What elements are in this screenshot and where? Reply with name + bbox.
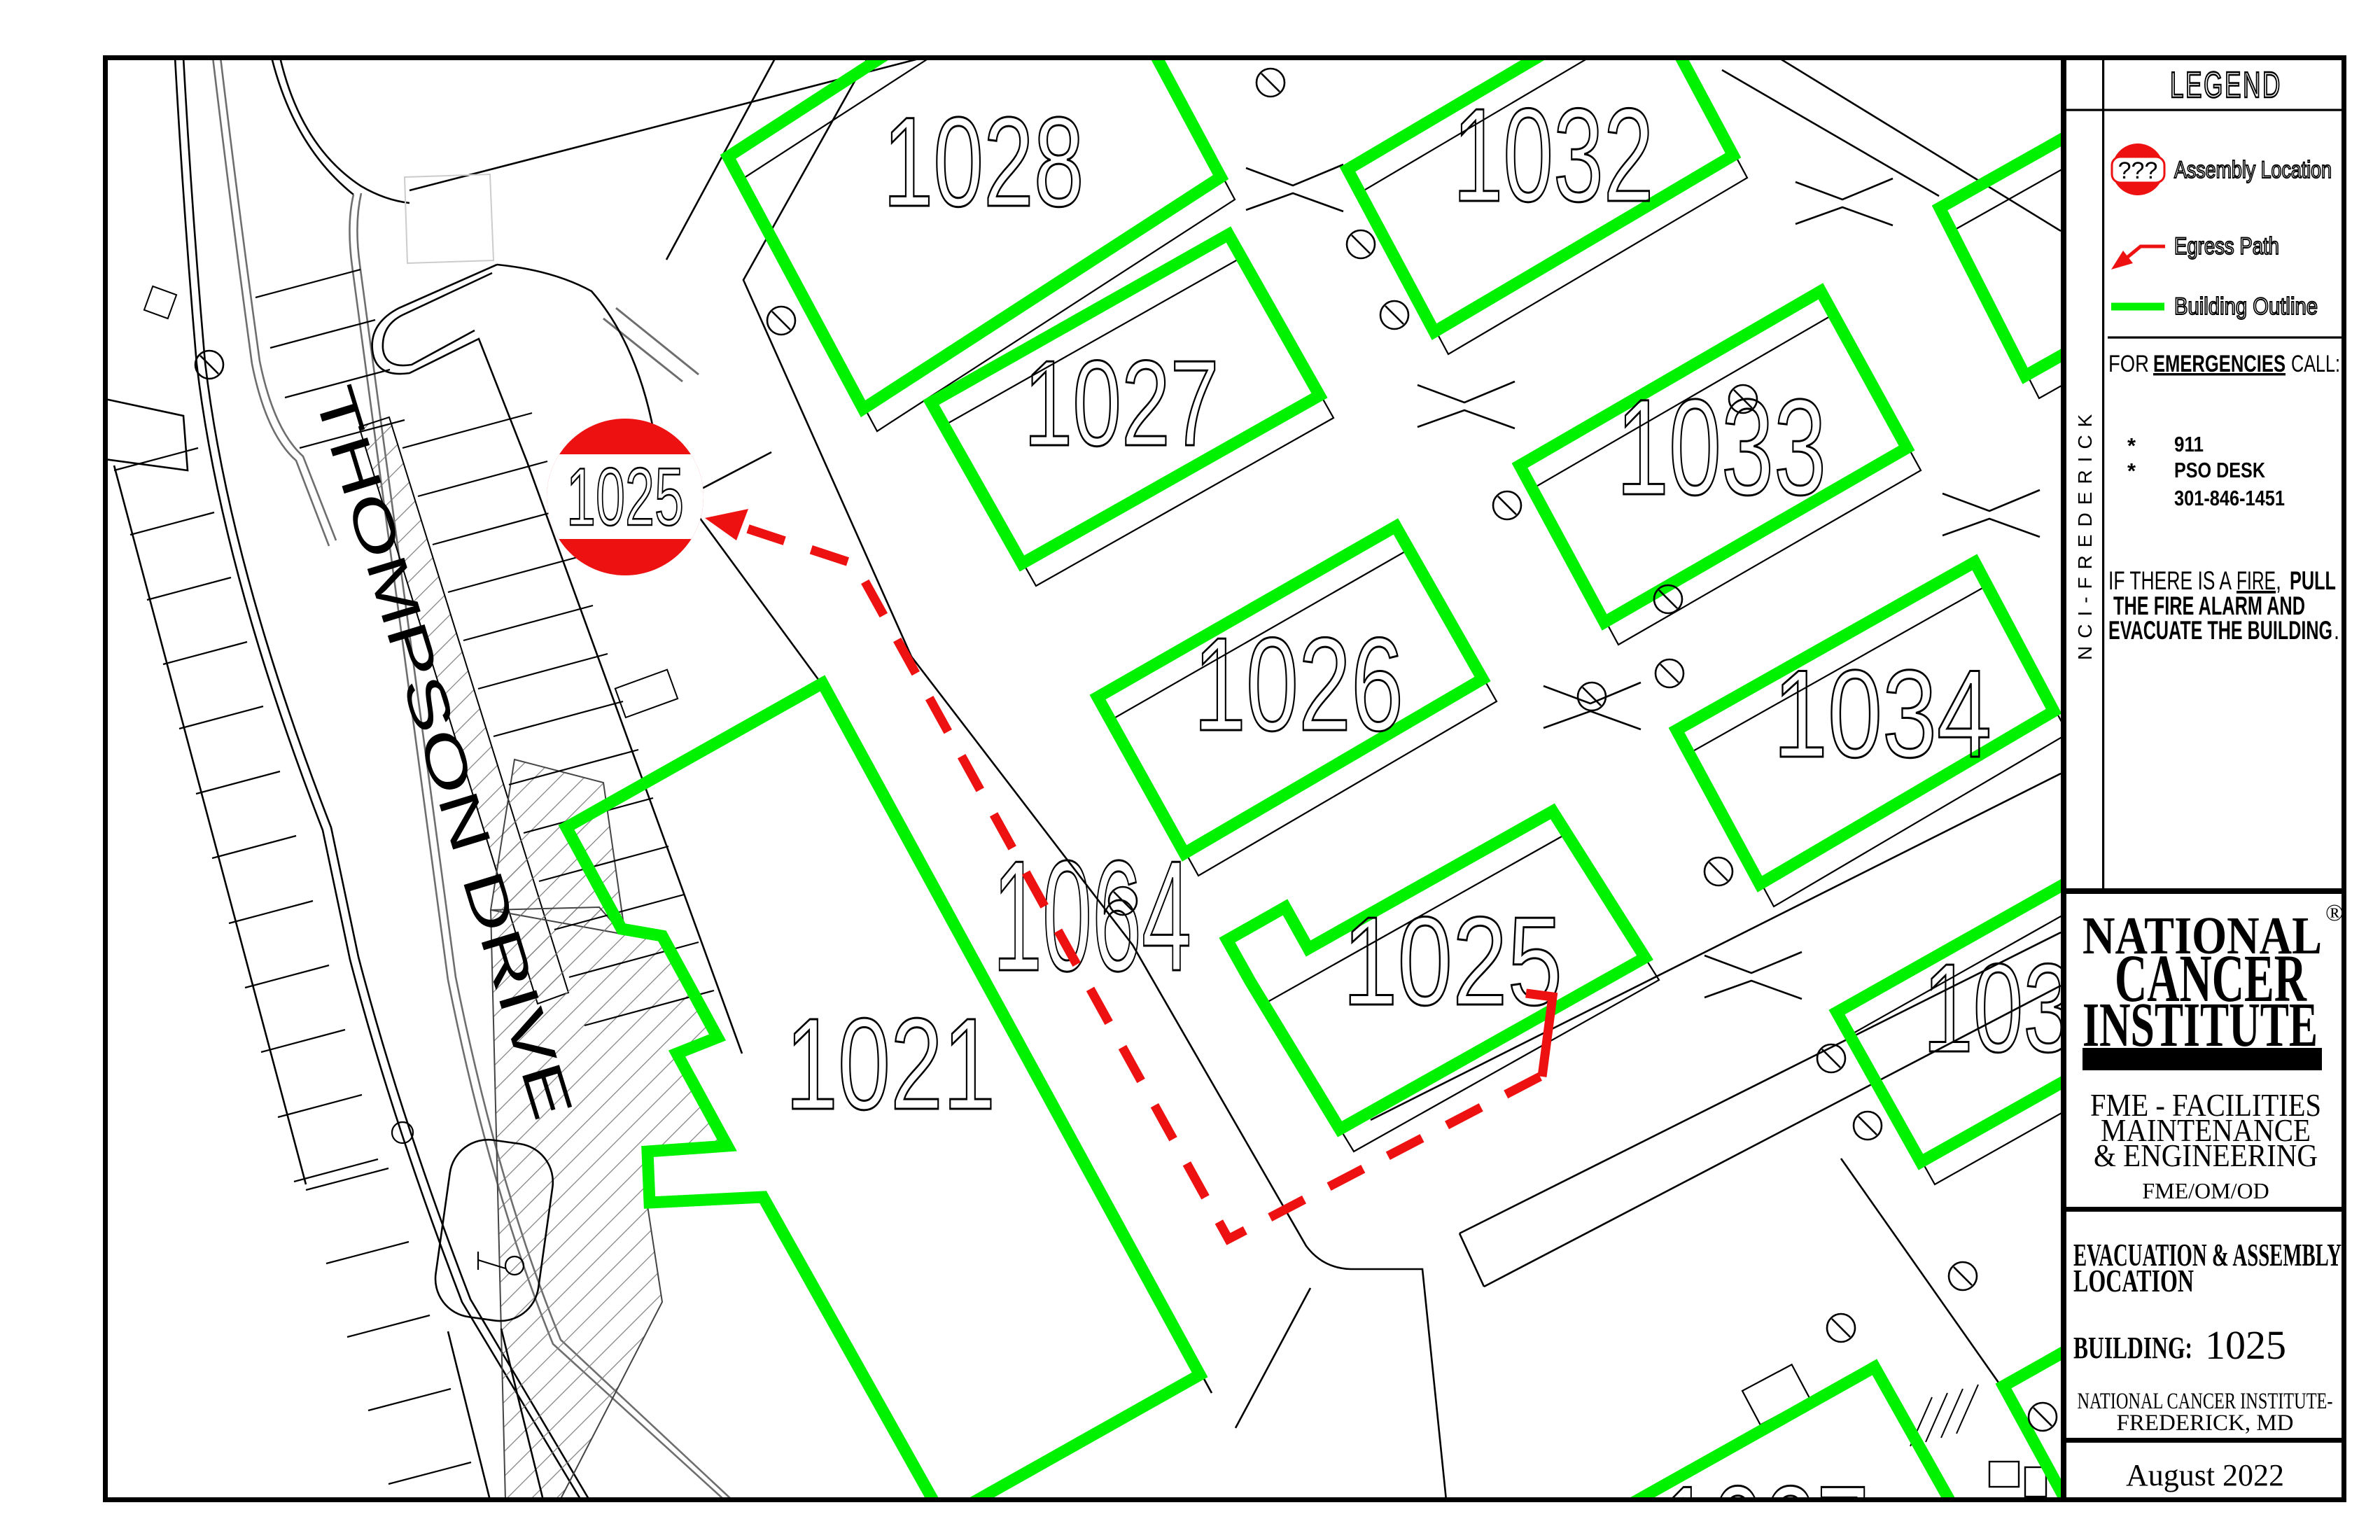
svg-text:& ENGINEERING: & ENGINEERING bbox=[2094, 1137, 2318, 1173]
svg-text:LOCATION: LOCATION bbox=[2073, 1263, 2194, 1298]
svg-text:1064: 1064 bbox=[993, 827, 1191, 1004]
svg-text:®: ® bbox=[2325, 900, 2344, 926]
svg-text:.: . bbox=[2334, 616, 2339, 645]
svg-text:*: * bbox=[2127, 458, 2136, 483]
svg-text:PULL: PULL bbox=[2290, 566, 2336, 595]
svg-text:1028: 1028 bbox=[883, 90, 1084, 233]
svg-text:1034: 1034 bbox=[1773, 644, 1991, 783]
svg-text:NCI-FREDERICK: NCI-FREDERICK bbox=[2074, 407, 2096, 660]
svg-text:BUILDING:: BUILDING: bbox=[2073, 1331, 2192, 1365]
svg-text:301-846-1451: 301-846-1451 bbox=[2174, 486, 2285, 510]
svg-text:1026: 1026 bbox=[1193, 610, 1403, 759]
svg-text:*: * bbox=[2127, 433, 2136, 458]
svg-text:Egress Path: Egress Path bbox=[2174, 233, 2279, 260]
svg-text:911: 911 bbox=[2174, 432, 2204, 456]
svg-text:Building Outline: Building Outline bbox=[2174, 293, 2318, 320]
svg-text:1027: 1027 bbox=[1024, 335, 1219, 471]
svg-text:103: 103 bbox=[1923, 938, 2073, 1079]
svg-text:Assembly Location: Assembly Location bbox=[2174, 157, 2332, 183]
svg-text:???: ??? bbox=[2118, 157, 2158, 184]
svg-text:LEGEND: LEGEND bbox=[2170, 65, 2282, 106]
svg-text:1025: 1025 bbox=[2205, 1322, 2286, 1368]
svg-text:1033: 1033 bbox=[1616, 371, 1826, 524]
svg-text:FREDERICK, MD: FREDERICK, MD bbox=[2116, 1410, 2293, 1436]
svg-text:FME/OM/OD: FME/OM/OD bbox=[2142, 1178, 2269, 1203]
svg-text:FIRE: FIRE bbox=[2236, 566, 2276, 595]
svg-text:IF THERE IS A: IF THERE IS A bbox=[2108, 566, 2232, 595]
svg-text:August 2022: August 2022 bbox=[2126, 1458, 2284, 1492]
svg-text:1025: 1025 bbox=[566, 451, 684, 542]
svg-text:EMERGENCIES: EMERGENCIES bbox=[2153, 351, 2285, 377]
svg-text:EVACUATE THE BUILDING: EVACUATE THE BUILDING bbox=[2108, 616, 2332, 645]
svg-text:1021: 1021 bbox=[785, 992, 995, 1137]
svg-text:PSO DESK: PSO DESK bbox=[2174, 458, 2265, 482]
svg-text:1032: 1032 bbox=[1453, 81, 1654, 230]
svg-text:,: , bbox=[2276, 566, 2281, 595]
svg-text:1025: 1025 bbox=[1343, 891, 1562, 1032]
svg-text:FOR: FOR bbox=[2108, 351, 2149, 377]
svg-text:CALL:: CALL: bbox=[2291, 351, 2340, 377]
